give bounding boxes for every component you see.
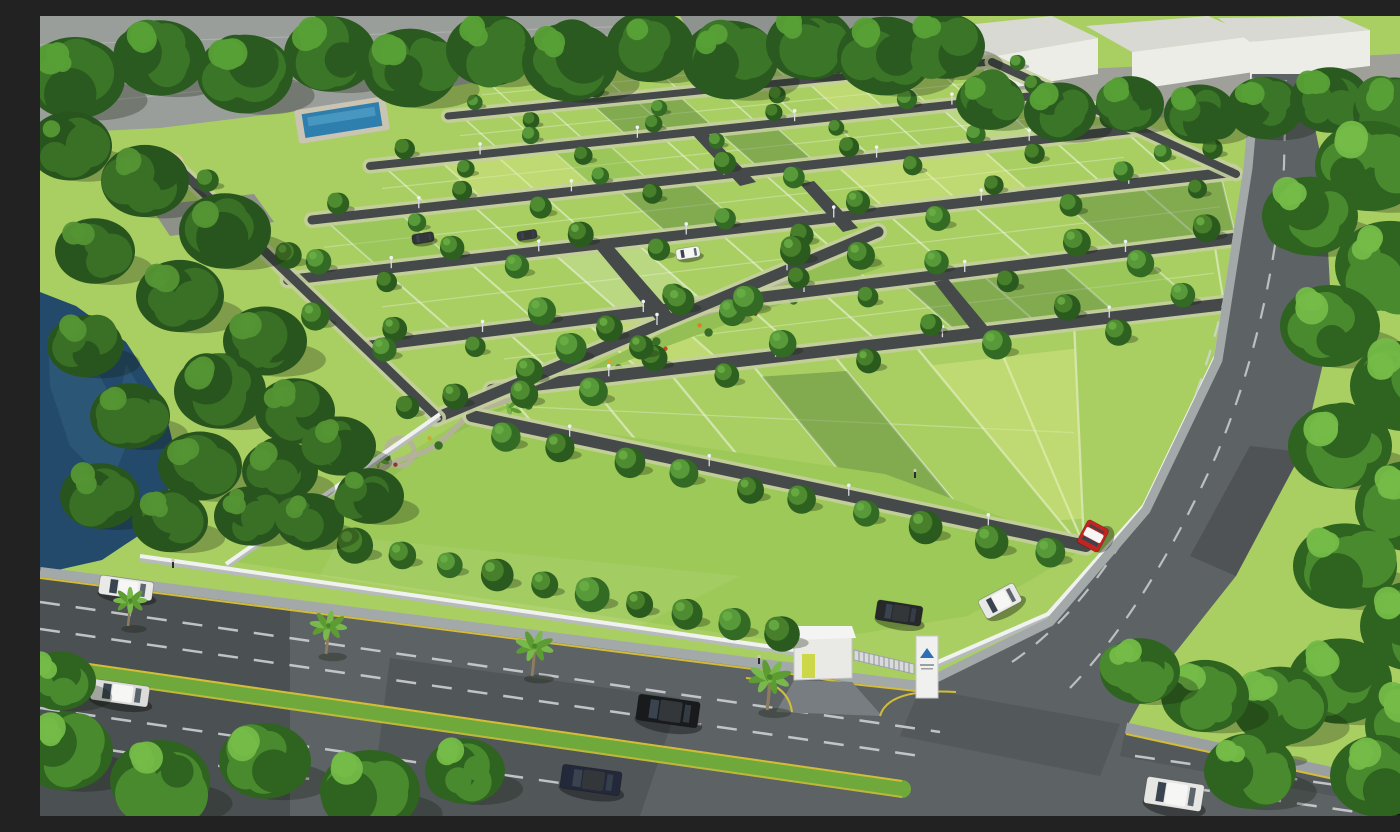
car-roof — [1164, 782, 1188, 807]
entrance-pylon — [916, 636, 938, 698]
pedestrian-head — [913, 469, 916, 472]
forest-highlight — [1173, 90, 1192, 109]
forest-highlight — [254, 442, 278, 466]
tree-highlight — [508, 257, 515, 264]
tree-canopy — [709, 133, 720, 144]
street-lamp-head — [987, 513, 991, 517]
car-roof — [891, 604, 910, 622]
forest-highlight — [1295, 291, 1328, 324]
tree-highlight — [859, 351, 866, 358]
tree-highlight — [1057, 297, 1065, 305]
forest-highlight — [332, 751, 358, 777]
tree-highlight — [618, 450, 627, 459]
forest-blob — [1316, 325, 1347, 356]
forest-highlight — [1279, 188, 1301, 210]
tree-highlight — [305, 305, 313, 313]
street-lamp-head — [684, 222, 688, 226]
street-lamp-head — [832, 205, 836, 209]
tree-canopy — [985, 176, 998, 189]
forest-highlight — [116, 148, 141, 173]
forest-highlight — [1115, 642, 1134, 661]
tree-highlight — [772, 333, 780, 341]
street-lamp-head — [1107, 305, 1111, 309]
tree-highlight — [718, 366, 725, 373]
forest-highlight — [100, 389, 121, 410]
forest-highlight — [1242, 82, 1265, 105]
tree-highlight — [583, 380, 592, 389]
tree-canopy — [645, 115, 657, 127]
forest-blob — [1309, 553, 1362, 606]
tree-highlight — [740, 479, 748, 487]
forest-highlight — [1352, 239, 1373, 260]
aerial-site-render: Aerial 3D render of a plotted land devel… — [40, 16, 1400, 816]
tree-highlight — [440, 555, 448, 563]
forest-highlight — [147, 491, 167, 511]
tree-canopy — [643, 184, 657, 198]
forest-blob — [939, 18, 978, 57]
tree-canopy — [523, 112, 534, 123]
tree-canopy — [648, 239, 663, 254]
tree-canopy — [858, 287, 872, 301]
tree-canopy — [522, 127, 534, 139]
forest-blob — [86, 246, 118, 278]
tree-highlight — [309, 252, 317, 260]
flower-bed — [607, 359, 611, 363]
forest-highlight — [1368, 83, 1393, 108]
tree-canopy — [714, 152, 729, 167]
pedestrian-head — [757, 655, 760, 658]
forest-blob — [1260, 81, 1292, 113]
forest-highlight — [152, 265, 180, 293]
tree-canopy — [396, 396, 412, 412]
street-lamp-head — [568, 424, 572, 428]
forest-highlight — [544, 37, 564, 57]
forest-blob — [40, 142, 70, 172]
tree-canopy — [197, 170, 212, 185]
flower-bed — [393, 463, 397, 467]
tree-highlight — [579, 581, 589, 591]
street-lamp-head — [570, 179, 574, 183]
tree-highlight — [571, 224, 579, 232]
tree-canopy — [1188, 180, 1201, 193]
tree-highlight — [850, 244, 858, 252]
car-roof — [111, 684, 134, 704]
forest-highlight — [1035, 82, 1059, 106]
tree-highlight — [849, 193, 856, 200]
street-lamp-head — [707, 454, 711, 458]
street-lamp-head — [875, 145, 879, 149]
tree-canopy — [839, 137, 853, 151]
tree-highlight — [1196, 217, 1204, 225]
tree-highlight — [385, 319, 392, 326]
pylon-text-line — [920, 664, 934, 666]
forest-highlight — [1256, 676, 1278, 698]
forest-highlight — [275, 386, 296, 407]
tree-highlight — [769, 620, 780, 631]
tree-highlight — [531, 300, 539, 308]
forest-highlight — [349, 472, 362, 485]
tree-highlight — [375, 340, 382, 347]
tree-highlight — [736, 289, 745, 298]
car-roof — [524, 231, 532, 239]
street-lamp-head — [950, 92, 954, 96]
tree-canopy — [453, 181, 467, 195]
pylon-text-line — [921, 668, 933, 670]
forest-highlight — [1306, 528, 1332, 554]
forest-highlight — [299, 25, 323, 49]
tree-highlight — [485, 562, 495, 572]
shrub — [652, 337, 660, 345]
tree-canopy — [1114, 162, 1128, 176]
tree-canopy — [530, 197, 545, 212]
street-lamp-head — [847, 483, 851, 487]
forest-blob — [556, 28, 612, 84]
palm-crown — [326, 623, 331, 628]
tree-canopy — [651, 100, 662, 111]
forest-highlight — [187, 359, 214, 386]
tree-highlight — [928, 208, 936, 216]
aerial-render-canvas: Aerial 3D render of a plotted land devel… — [40, 16, 1400, 816]
tree-canopy — [903, 156, 916, 169]
tree-highlight — [927, 252, 934, 259]
tree-highlight — [1066, 232, 1074, 240]
tree-highlight — [519, 361, 527, 369]
forest-blob — [241, 501, 275, 535]
street-lamp-head — [979, 188, 983, 192]
forest-highlight — [213, 39, 244, 70]
forest-highlight — [1309, 415, 1338, 444]
street-lamp-head — [481, 320, 485, 324]
palm-shadow — [121, 625, 147, 633]
street-lamp-head — [636, 125, 640, 129]
forest-highlight — [236, 312, 262, 338]
tree-canopy — [592, 167, 604, 179]
forest-blob — [252, 749, 295, 792]
forest-highlight — [380, 37, 406, 63]
tree-highlight — [549, 436, 558, 445]
forest-highlight — [71, 465, 90, 484]
tree-highlight — [722, 611, 732, 621]
tree-highlight — [630, 594, 638, 602]
forest-highlight — [323, 424, 338, 439]
forest-highlight — [856, 25, 879, 48]
street-lamp-head — [478, 142, 482, 146]
forest-highlight — [628, 18, 647, 37]
forest-blob — [50, 678, 78, 706]
tree-highlight — [632, 337, 639, 344]
forest-highlight — [289, 497, 305, 513]
forest-highlight — [914, 16, 934, 35]
street-lamp-head — [963, 260, 967, 264]
shrub — [434, 441, 442, 449]
tree-highlight — [791, 488, 800, 497]
street-lamp-head — [793, 109, 797, 113]
street-lamp-head — [641, 300, 645, 304]
tree-highlight — [446, 386, 454, 394]
car-roof — [581, 769, 605, 791]
street-lamp-head — [389, 256, 393, 260]
tree-highlight — [1108, 322, 1116, 330]
tree-canopy — [1025, 76, 1037, 88]
tree-highlight — [1039, 541, 1048, 550]
forest-highlight — [193, 201, 219, 227]
forest-highlight — [129, 742, 152, 765]
car-roof — [684, 248, 694, 258]
forest-highlight — [1349, 750, 1369, 770]
forest-highlight — [438, 739, 459, 760]
tree-canopy — [997, 270, 1012, 285]
forest-blob — [445, 767, 471, 793]
forest-blob — [1281, 686, 1324, 729]
tree-highlight — [784, 239, 793, 248]
street-lamp-head — [607, 364, 611, 368]
tree-highlight — [495, 425, 504, 434]
flower-bed — [697, 323, 701, 327]
tree-canopy — [457, 160, 469, 172]
gatehouse-door — [802, 654, 815, 678]
forest-blob — [325, 42, 361, 78]
tree-highlight — [979, 529, 989, 539]
forest-highlight — [965, 78, 985, 98]
tree-highlight — [443, 238, 450, 245]
street-lamp-head — [417, 196, 421, 200]
street-lamp-head — [1124, 240, 1128, 244]
forest-blob — [173, 281, 212, 320]
forest-highlight — [467, 25, 488, 46]
forest-highlight — [1341, 126, 1366, 151]
tree-highlight — [913, 514, 923, 524]
tree-canopy — [328, 193, 343, 208]
street-lamp-head — [655, 313, 659, 317]
tree-canopy — [408, 214, 421, 227]
shrub — [704, 328, 712, 336]
tree-highlight — [673, 462, 682, 471]
street-lamp-head — [1027, 128, 1031, 132]
car-roof — [419, 233, 428, 242]
forest-highlight — [1367, 353, 1394, 380]
tree-canopy — [574, 147, 587, 160]
forest-blob — [466, 41, 512, 87]
tree-highlight — [559, 336, 568, 345]
tree-canopy — [766, 104, 778, 116]
tree-canopy — [395, 139, 409, 153]
forest-blob — [161, 755, 194, 788]
palm-shadow — [758, 708, 791, 718]
palm-crown — [532, 644, 537, 649]
tree-canopy — [829, 120, 840, 131]
forest-highlight — [70, 224, 85, 239]
tree-highlight — [514, 383, 522, 391]
forest-blob — [1108, 98, 1141, 131]
tree-canopy — [921, 314, 936, 329]
gatehouse-roof — [790, 626, 856, 640]
tree-highlight — [535, 574, 543, 582]
flower-bed — [427, 436, 431, 440]
tree-highlight — [599, 318, 607, 326]
tree-highlight — [986, 333, 995, 342]
tree-canopy — [465, 337, 479, 351]
forest-highlight — [698, 31, 716, 49]
tree-highlight — [675, 602, 684, 611]
forest-highlight — [60, 317, 79, 336]
tree-highlight — [670, 290, 678, 298]
tree-canopy — [1010, 55, 1021, 66]
tree-canopy — [1154, 144, 1166, 156]
forest-highlight — [223, 495, 241, 513]
forest-highlight — [230, 726, 260, 756]
tree-canopy — [715, 208, 730, 223]
forest-blob — [66, 123, 110, 167]
forest-blob — [1054, 98, 1085, 129]
forest-highlight — [130, 26, 157, 53]
palm-crown — [128, 598, 132, 602]
forest-highlight — [1228, 746, 1245, 763]
palm-crown — [767, 674, 773, 680]
palm-shadow — [318, 653, 347, 662]
tree-canopy — [1060, 194, 1076, 210]
palm-shadow — [524, 675, 554, 684]
car-roof — [658, 699, 683, 723]
forest-highlight — [1296, 71, 1320, 95]
forest-highlight — [167, 440, 192, 465]
tree-highlight — [856, 503, 864, 511]
tree-highlight — [722, 302, 730, 310]
pedestrian-head — [171, 559, 174, 562]
tree-highlight — [392, 544, 400, 552]
forest-highlight — [44, 120, 60, 136]
forest-highlight — [1112, 83, 1129, 100]
tree-canopy — [783, 167, 798, 182]
tree-canopy — [377, 272, 391, 286]
tree-highlight — [1174, 285, 1181, 292]
tree-canopy — [1025, 144, 1039, 158]
forest-highlight — [1306, 645, 1338, 677]
tree-highlight — [1130, 253, 1138, 261]
tree-canopy — [788, 267, 803, 282]
forest-highlight — [1378, 476, 1400, 498]
